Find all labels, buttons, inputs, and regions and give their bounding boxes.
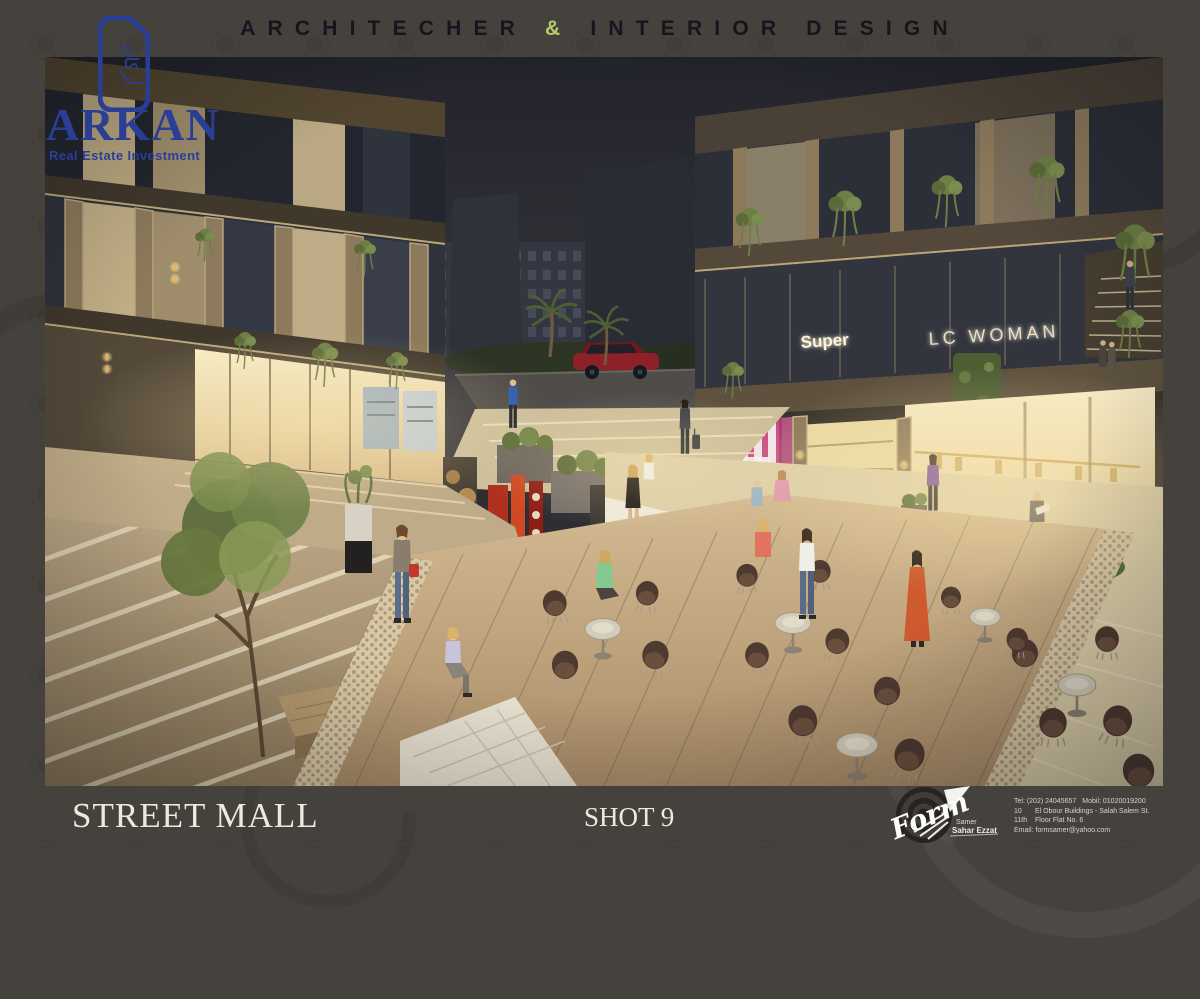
shot-label: SHOT 9 [584, 802, 674, 833]
form-studio-logo: Form Samer Sahar Ezzat [886, 786, 1012, 851]
header-title-part1: ARCHITECHER [240, 17, 527, 40]
contact-mobile: Mobil: 01020019200 [1082, 797, 1145, 807]
signature-bottom: Sahar Ezzat [952, 826, 997, 835]
contact-floor-no: 11th [1014, 816, 1029, 826]
contact-tel: Tel: (202) 24045657 [1014, 797, 1076, 807]
contact-address: El Obour Buildings - Salah Salem St. [1035, 807, 1149, 817]
header-title-part2: INTERIOR DESIGN [590, 17, 959, 40]
studio-contact-block: Tel: (202) 24045657 Mobil: 01020019200 1… [1014, 797, 1198, 835]
arkan-tagline: Real Estate Investment [49, 148, 200, 163]
arkan-logo-icon: أركان [98, 16, 150, 112]
signature-top: Samer [956, 819, 977, 826]
arkan-wordmark: ARKAN [46, 102, 220, 148]
project-title: STREET MALL [72, 796, 319, 836]
header-ampersand: & [545, 17, 572, 40]
arkan-logo: أركان ARKAN Real Estate Investment [44, 4, 224, 174]
contact-floor: Floor Flat No. 6 [1035, 816, 1083, 826]
contact-address-no: 10 [1014, 807, 1029, 817]
contact-email: Email: formsamer@yahoo.com [1014, 826, 1110, 836]
presentation-board: { "palette": { "background": "#45423e", … [0, 0, 1200, 848]
arkan-arabic-mark: أركان [120, 42, 144, 85]
